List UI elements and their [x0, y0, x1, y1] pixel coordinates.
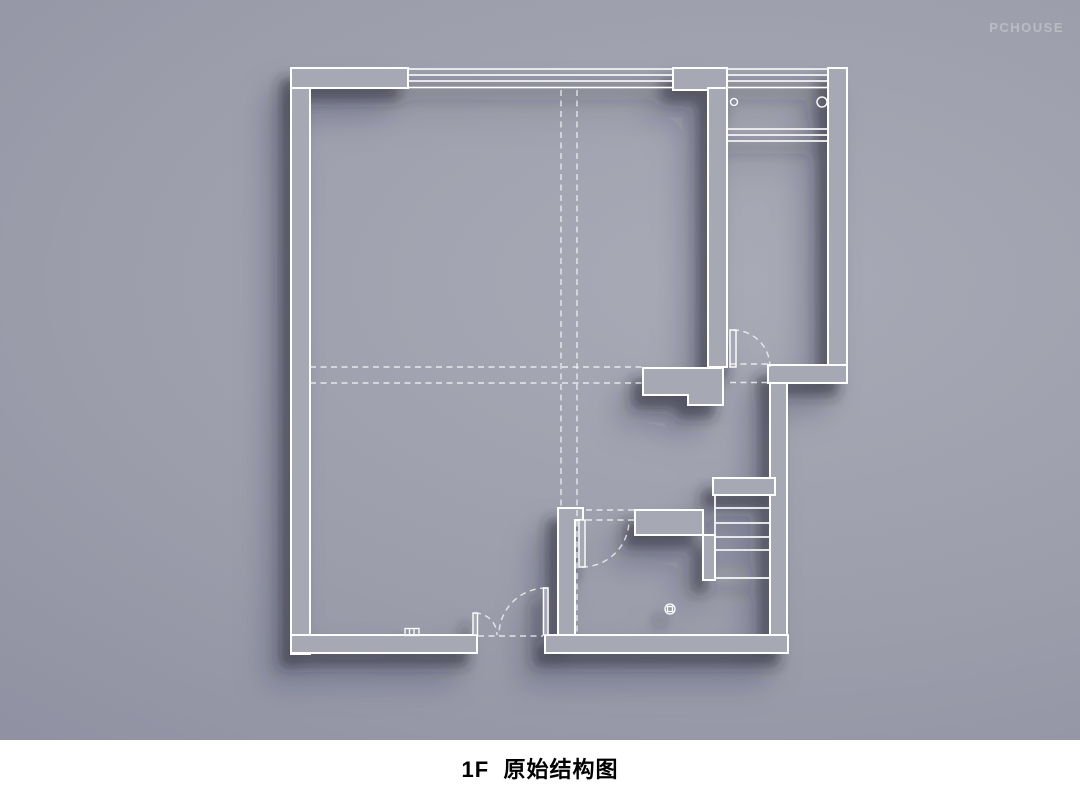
staircase — [713, 478, 775, 578]
watermark: PCHOUSE — [989, 20, 1064, 35]
entry-door-swing-arc — [733, 330, 770, 367]
double-door-left-leaf — [473, 613, 478, 635]
wall-top-pier — [673, 68, 727, 90]
balcony-pipe-icon — [817, 97, 827, 107]
wall-bathroom-top — [635, 510, 703, 535]
bathroom-door-leaf — [579, 520, 585, 567]
window-balcony — [727, 69, 828, 88]
entry-door-leaf — [730, 330, 736, 367]
stair-top-landing — [713, 478, 775, 495]
floor-drain-icon — [665, 604, 675, 614]
dashed-lines-group — [310, 90, 770, 636]
wall-entry-stub — [643, 368, 723, 405]
double-door-left-swing-arc — [475, 613, 497, 635]
wall-bottom-right — [545, 635, 788, 653]
image-canvas: PCHOUSE 1F 原始结构图 — [0, 0, 1080, 796]
wall-top-left — [291, 68, 408, 88]
walls-group — [291, 68, 847, 654]
bathroom-door-swing-arc — [582, 520, 629, 567]
wall-right-lower — [770, 383, 787, 653]
wall-left — [291, 68, 310, 654]
plan-area: PCHOUSE — [0, 0, 1080, 740]
double-door-right-swing-arc — [499, 588, 546, 635]
balcony-pipe-icon — [731, 99, 738, 106]
caption-bar: 1F 原始结构图 — [0, 740, 1080, 796]
page-title: 1F 原始结构图 — [462, 752, 619, 784]
double-door-right-leaf — [544, 588, 549, 635]
floor-plan — [0, 0, 1080, 740]
wall-stair-side — [703, 535, 715, 580]
window-top-main — [408, 69, 673, 88]
wall-bottom-left — [291, 635, 477, 653]
balcony-railing — [728, 129, 827, 141]
wall-inner-vertical — [708, 88, 727, 367]
wall-corridor-bottom — [768, 365, 847, 383]
wall-right-exterior — [828, 68, 847, 383]
